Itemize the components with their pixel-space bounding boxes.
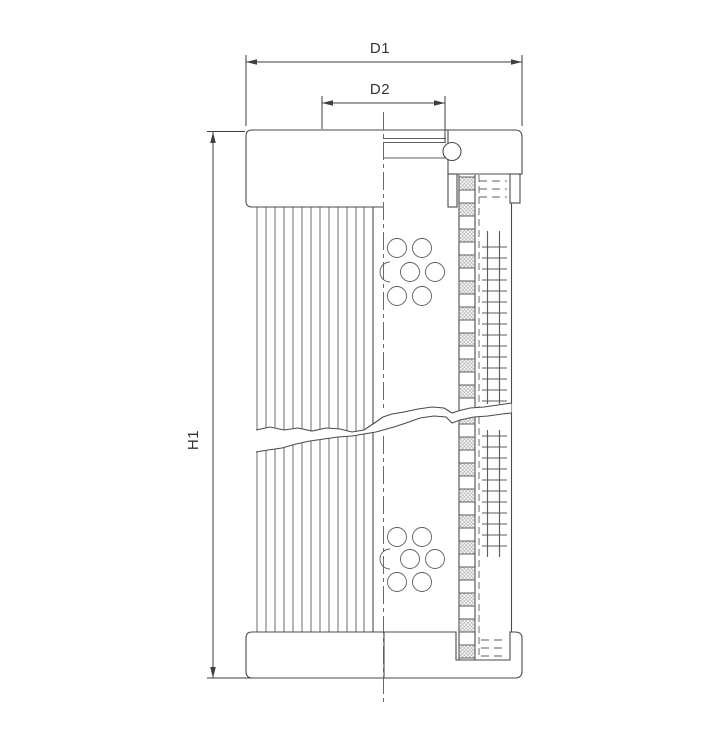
perforation-holes-top <box>380 239 445 306</box>
bottom-end-cap <box>246 632 522 678</box>
d1-arrow-right <box>511 59 522 65</box>
d2-arrow-left <box>322 100 333 106</box>
pleated-filter-media <box>257 207 364 632</box>
filter-element-technical-drawing: D1 D2 H1 <box>0 0 716 734</box>
d1-label: D1 <box>370 40 390 57</box>
top-cap-inner-skirt <box>448 174 457 207</box>
support-mesh-lower <box>482 430 507 557</box>
d2-arrow-right <box>434 100 445 106</box>
top-end-cap <box>246 130 522 207</box>
o-ring-seal <box>443 143 461 161</box>
h1-arrow-top <box>210 132 216 143</box>
d2-label: D2 <box>370 81 390 98</box>
top-cap-outer-skirt <box>510 174 520 203</box>
perforation-holes-bottom <box>380 528 445 592</box>
dimension-h1: H1 <box>185 132 251 679</box>
adhesive-hidden-lines-top <box>479 181 507 197</box>
d1-arrow-left <box>246 59 257 65</box>
h1-arrow-bottom <box>210 667 216 678</box>
support-mesh-upper <box>482 231 507 404</box>
h1-label: H1 <box>185 430 202 450</box>
bottom-cap-section <box>384 632 522 678</box>
adhesive-hidden-lines-bottom <box>481 640 507 656</box>
drawing-canvas: D1 D2 H1 <box>0 0 716 734</box>
